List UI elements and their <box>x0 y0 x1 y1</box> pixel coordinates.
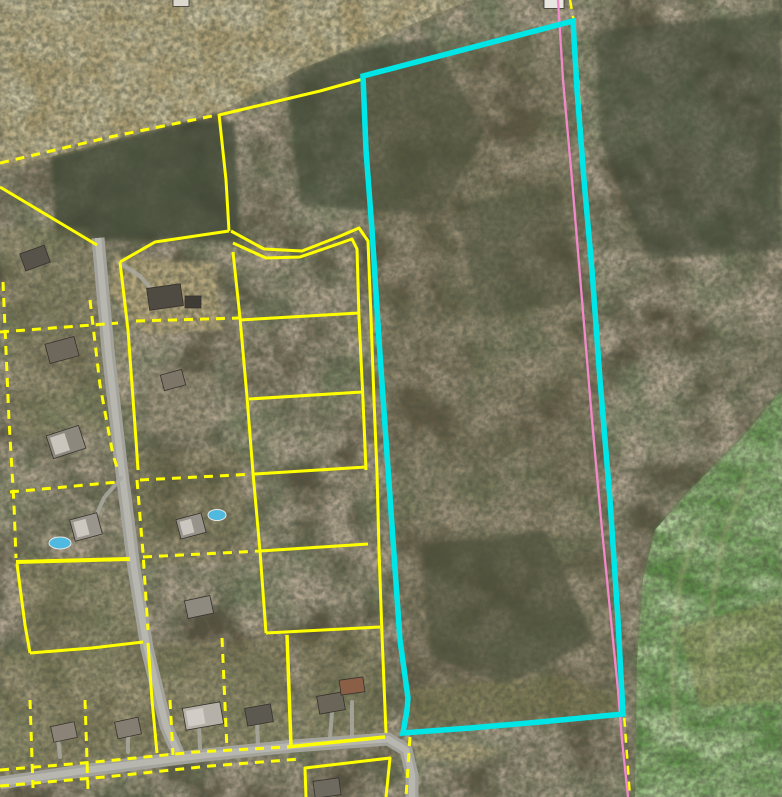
barn <box>173 0 189 7</box>
house <box>313 778 341 797</box>
driveway <box>257 724 258 744</box>
construction-structure <box>147 284 184 311</box>
map-viewport[interactable] <box>0 0 782 797</box>
map-svg <box>0 0 782 797</box>
driveway <box>330 712 332 738</box>
house <box>339 677 365 695</box>
driveway <box>199 726 200 748</box>
barn <box>544 0 564 9</box>
swimming-pool <box>49 537 71 549</box>
swimming-pool <box>208 510 226 521</box>
construction-structure <box>185 296 201 308</box>
